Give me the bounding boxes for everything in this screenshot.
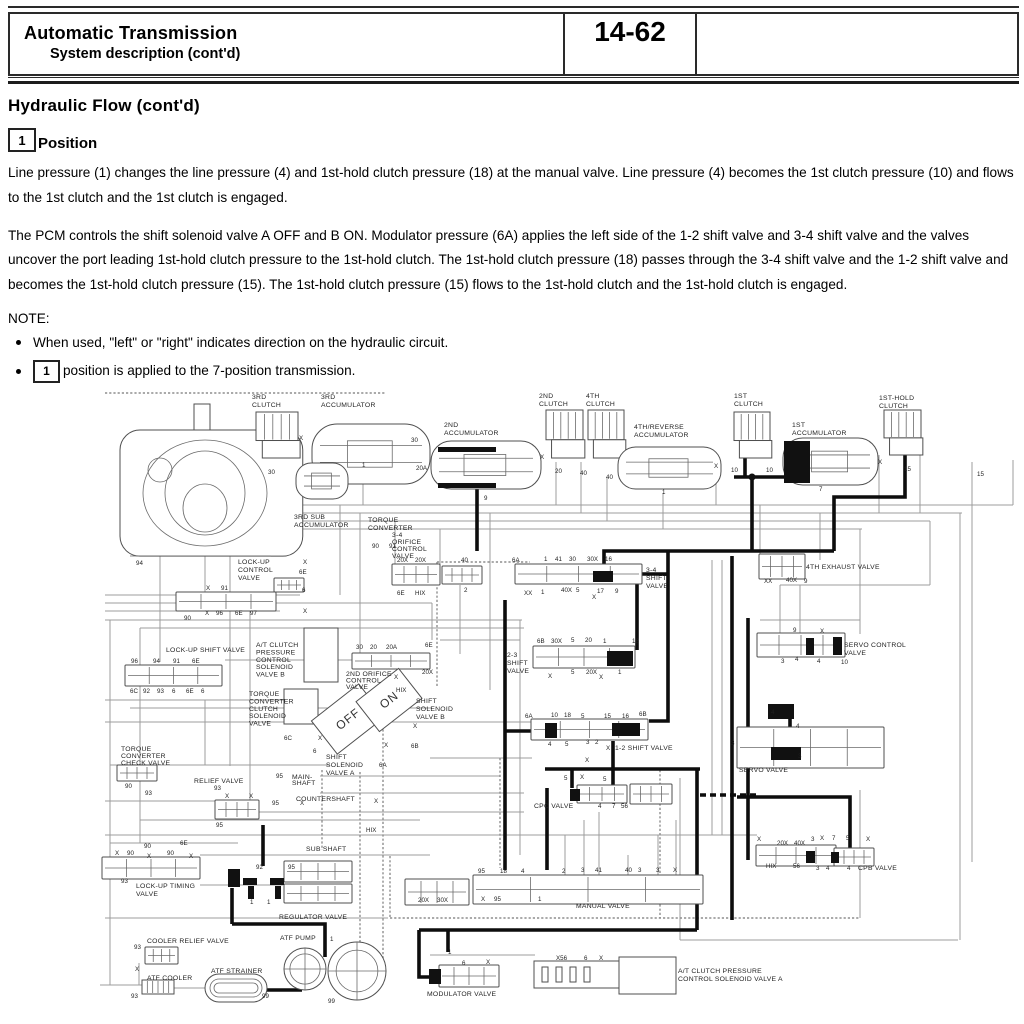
- diagram-label: TORQUECONVERTERCHECK VALVE: [121, 746, 171, 767]
- section-heading: Hydraulic Flow (cont'd): [8, 96, 1016, 116]
- port-label: 6E: [180, 840, 188, 847]
- diagram-label: 1STCLUTCH: [734, 393, 763, 408]
- circle-shape: [328, 942, 386, 1000]
- port-label: X: [249, 793, 253, 800]
- port-label: 20X: [422, 669, 433, 676]
- diagram-label: ATF PUMP: [280, 935, 316, 942]
- port-label: 9: [615, 588, 619, 595]
- port-label: 4: [771, 709, 775, 716]
- port-label: 93: [214, 785, 221, 792]
- port-label: 4: [847, 865, 851, 872]
- diagram-label: LOCK-UP TIMINGVALVE: [136, 883, 195, 898]
- port-label: X: [147, 853, 151, 860]
- port-label: X: [206, 585, 210, 592]
- port-label: 10: [731, 467, 738, 474]
- port-label: 5: [576, 587, 580, 594]
- port-label: X: [757, 836, 761, 843]
- port-label: X: [205, 610, 209, 617]
- port-label: 93: [131, 993, 138, 1000]
- dark-shape: [270, 878, 284, 885]
- port-label: 90: [144, 843, 151, 850]
- port-label: 1: [541, 589, 545, 596]
- port-label: X: [580, 774, 584, 781]
- port-label: 56: [621, 803, 628, 810]
- port-label: 1: [267, 899, 271, 906]
- dark-shape: [593, 571, 613, 582]
- header-bottom-rule: [8, 77, 1019, 84]
- port-label: X: [820, 835, 824, 842]
- port-label: 6B: [537, 638, 545, 645]
- port-label: 20: [555, 468, 562, 475]
- port-label: 30: [411, 437, 418, 444]
- port-label: 40X: [786, 577, 797, 584]
- hydraulic-circuit-diagram: OFFON3RDCLUTCH3RDACCUMULATOR3RD SUBACCUM…: [0, 385, 1024, 1024]
- port-label: XX: [524, 590, 532, 597]
- diagram-label: 3RDACCUMULATOR: [321, 394, 376, 409]
- diagram-label: MODULATOR VALVE: [427, 991, 497, 998]
- port-label: 16: [622, 713, 629, 720]
- port-label: HIX: [766, 863, 776, 870]
- port-label: 5: [564, 775, 568, 782]
- note-list: When used, "left" or "right" indicates d…: [12, 333, 1016, 383]
- valve-shape: [125, 665, 222, 686]
- port-label: X: [599, 674, 603, 681]
- port-label: 6E: [299, 569, 307, 576]
- port-label: 92: [256, 864, 263, 871]
- diagram-label: 3-4SHIFTVALVE: [646, 567, 668, 590]
- port-label: 56: [793, 863, 800, 870]
- port-label: 1: [538, 896, 542, 903]
- port-label: 95: [276, 773, 283, 780]
- bullet-dot-icon: [16, 369, 21, 374]
- diagram-label: COUNTERSHAFT: [296, 796, 355, 803]
- port-label: 6: [302, 587, 306, 594]
- port-label: 20X: [397, 557, 408, 564]
- port-label: 5: [846, 835, 850, 842]
- port-label: 40: [625, 867, 632, 874]
- note-label: NOTE:: [8, 311, 1016, 326]
- valve-shape: [577, 785, 627, 803]
- box-shape: [304, 628, 338, 682]
- dark-shape: [784, 441, 810, 483]
- position-row: 1 Position: [8, 130, 1016, 152]
- clutch-shape: [884, 410, 923, 455]
- port-label: 15: [977, 471, 984, 478]
- port-label: 94: [136, 560, 143, 567]
- port-label: 18: [564, 712, 571, 719]
- port-label: 10: [551, 712, 558, 719]
- port-label: HIX: [396, 687, 406, 694]
- port-label: X: [820, 628, 824, 635]
- port-label: 20A: [386, 644, 398, 651]
- port-label: 6B: [411, 743, 419, 750]
- port-label: X: [481, 896, 485, 903]
- diagram-label: REGULATOR VALVE: [279, 914, 347, 921]
- port-label: X: [299, 435, 303, 442]
- port-label: X: [413, 723, 417, 730]
- page-number: 14-62: [565, 14, 697, 74]
- port-label: 95: [494, 896, 501, 903]
- port-label: 20: [370, 644, 377, 651]
- port-label: X: [548, 673, 552, 680]
- cooler-shape: [142, 980, 174, 994]
- paragraph-1: Line pressure (1) changes the line press…: [8, 161, 1016, 210]
- dark-shape: [806, 851, 815, 863]
- port-label: 95: [216, 822, 223, 829]
- port-label: 6: [201, 688, 205, 695]
- valve-shape: [176, 592, 276, 611]
- diagram-label: LOCK-UPCONTROLVALVE: [238, 559, 273, 582]
- port-label: HIX: [415, 590, 425, 597]
- port-label: 4: [598, 803, 602, 810]
- note-item-2: 1 position is applied to the 7-position …: [12, 360, 1016, 383]
- port-label: 6E: [397, 590, 405, 597]
- port-label: 30: [268, 469, 275, 476]
- port-label: 20X: [415, 557, 426, 564]
- position-number-box: 1: [8, 128, 36, 152]
- page-content: Hydraulic Flow (cont'd) 1 Position Line …: [8, 96, 1016, 383]
- port-label: HIX: [366, 827, 376, 834]
- port-label: X: [225, 793, 229, 800]
- port-label: 20X: [418, 897, 429, 904]
- note-position-box: 1: [33, 360, 60, 383]
- diagram-label: SHIFTSOLENOIDVALVE B: [416, 698, 453, 721]
- port-label: X: [300, 800, 304, 807]
- port-label: 1: [448, 949, 452, 956]
- port-label: X: [606, 745, 610, 752]
- port-label: 90: [167, 850, 174, 857]
- port-label: X: [189, 853, 193, 860]
- diagram-label: RELIEF VALVE: [194, 778, 244, 785]
- port-label: 93: [134, 944, 141, 951]
- port-label: 3: [731, 740, 735, 747]
- dark-shape: [771, 747, 801, 760]
- port-label: 5: [571, 637, 575, 644]
- dark-shape: [248, 886, 254, 899]
- box-shape: [619, 957, 676, 994]
- diagram-label: 2NDACCUMULATOR: [444, 422, 499, 437]
- valve-shape: [274, 578, 304, 592]
- port-label: 41: [555, 556, 562, 563]
- port-label: X: [115, 850, 119, 857]
- port-label: 9: [804, 578, 808, 585]
- port-label: 6: [584, 955, 588, 962]
- port-label: 10: [766, 467, 773, 474]
- port-label: 2: [464, 587, 468, 594]
- port-label: 5: [603, 776, 607, 783]
- valve-shape: [757, 633, 845, 657]
- port-label: 4: [795, 656, 799, 663]
- port-label: 6C: [130, 688, 138, 695]
- port-label: 96: [216, 610, 223, 617]
- port-label: X: [673, 867, 677, 874]
- port-label: X: [878, 459, 882, 466]
- diagram-label: 2NDCLUTCH: [539, 393, 568, 408]
- clutch-shape: [256, 412, 300, 458]
- port-label: 3: [586, 739, 590, 746]
- diagram-label: 4TH EXHAUST VALVE: [806, 564, 880, 571]
- port-label: 3: [811, 836, 815, 843]
- port-label: 95: [288, 864, 295, 871]
- valve-shape: [392, 564, 440, 585]
- port-label: 4: [817, 658, 821, 665]
- clutch-shape: [588, 410, 626, 458]
- port-label: 1: [662, 489, 666, 496]
- port-label: 4: [796, 723, 800, 730]
- port-label: X: [384, 742, 388, 749]
- port-label: X: [394, 674, 398, 681]
- note-item-1-text: When used, "left" or "right" indicates d…: [33, 333, 448, 353]
- diagram-label: 2-3SHIFTVALVE: [507, 652, 529, 675]
- port-label: 1: [544, 556, 548, 563]
- diagram-label: SERVO CONTROLVALVE: [844, 642, 906, 657]
- port-label: 20X: [777, 840, 788, 847]
- port-label: 90: [184, 615, 191, 622]
- accum-shape: [296, 463, 348, 499]
- port-label: 4: [548, 741, 552, 748]
- port-label: 6: [313, 748, 317, 755]
- port-label: 5: [581, 713, 585, 720]
- port-label: 96: [131, 658, 138, 665]
- diagram-label: 3-4ORIFICECONTROLVALVE: [392, 532, 427, 560]
- port-label: X56: [556, 955, 568, 962]
- port-label: X: [866, 836, 870, 843]
- port-label: 9: [484, 495, 488, 502]
- valve-shape: [117, 765, 157, 781]
- port-label: 99: [328, 998, 335, 1005]
- dark-shape: [607, 651, 633, 666]
- port-label: 30: [356, 644, 363, 651]
- hydraulic-diagram-svg: OFFON3RDCLUTCH3RDACCUMULATOR3RD SUBACCUM…: [0, 385, 1024, 1024]
- dark-shape: [806, 638, 814, 655]
- port-label: 18: [500, 868, 507, 875]
- diagram-label: COOLER RELIEF VALVE: [147, 938, 229, 945]
- dark-shape: [228, 869, 240, 887]
- position-label: Position: [38, 135, 97, 152]
- port-label: 93: [145, 790, 152, 797]
- port-label: X: [303, 608, 307, 615]
- port-label: 40X: [794, 840, 805, 847]
- port-label: 4: [826, 865, 830, 872]
- port-label: 1: [618, 669, 622, 676]
- note-item-2-text: position is applied to the 7-position tr…: [63, 361, 355, 381]
- port-label: 40X: [561, 587, 572, 594]
- valve-shape: [102, 857, 200, 879]
- valve-shape: [439, 965, 499, 987]
- port-label: 1: [330, 936, 334, 943]
- port-label: XX: [764, 578, 772, 585]
- port-label: 7: [612, 803, 616, 810]
- valve-shape: [215, 800, 259, 819]
- dark-shape: [275, 886, 281, 899]
- box-shape: [284, 689, 318, 724]
- accum-shape: [618, 447, 721, 489]
- port-label: 17: [597, 588, 604, 595]
- diagram-label: 4THCLUTCH: [586, 393, 615, 408]
- port-label: 3: [816, 865, 820, 872]
- port-label: 6: [172, 688, 176, 695]
- port-label: 1: [603, 638, 607, 645]
- port-label: 20: [585, 637, 592, 644]
- port-label: 7: [832, 835, 836, 842]
- port-label: 5: [565, 741, 569, 748]
- port-label: 6: [462, 960, 466, 967]
- port-label: 10: [841, 659, 848, 666]
- port-label: 6B: [639, 711, 647, 718]
- diagram-label: MAIN-SHAFT: [292, 774, 316, 787]
- note-item-1: When used, "left" or "right" indicates d…: [12, 333, 1016, 353]
- port-label: 90: [372, 543, 379, 550]
- port-label: 30X: [587, 556, 598, 563]
- port-label: X: [592, 594, 596, 601]
- dark-shape: [438, 447, 496, 452]
- port-label: 90: [125, 783, 132, 790]
- port-label: 1: [250, 899, 254, 906]
- circle-shape: [284, 948, 326, 990]
- port-label: 6A: [379, 762, 387, 769]
- port-label: 40: [580, 470, 587, 477]
- diagram-label: LOCK-UP SHIFT VALVE: [166, 647, 245, 654]
- port-label: 3: [581, 867, 585, 874]
- port-label: X: [714, 463, 718, 470]
- dark-shape: [429, 969, 441, 984]
- port-label: 18: [632, 638, 639, 645]
- valve-shape: [737, 727, 884, 768]
- port-label: 93: [157, 688, 164, 695]
- port-label: 41: [595, 867, 602, 874]
- port-label: 95: [478, 868, 485, 875]
- dark-shape: [243, 878, 257, 885]
- diagram-label: A/T CLUTCH PRESSURECONTROL SOLENOID VALV…: [678, 968, 783, 983]
- paragraph-2: The PCM controls the shift solenoid valv…: [8, 224, 1016, 298]
- port-label: 3: [781, 658, 785, 665]
- port-label: 40: [461, 557, 468, 564]
- port-label: 94: [153, 658, 160, 665]
- port-label: 3: [798, 753, 802, 760]
- diagram-label: CPC VALVE: [534, 803, 574, 810]
- port-label: X: [318, 735, 322, 742]
- valve-shape: [352, 653, 430, 669]
- port-label: 9: [793, 627, 797, 634]
- valve-shape: [759, 554, 805, 579]
- valve-shape: [473, 875, 703, 904]
- diagram-label: ATF COOLER: [147, 975, 192, 982]
- diagram-label: MANUAL VALVE: [576, 903, 630, 910]
- components-layer: OFFON: [102, 404, 923, 1002]
- port-label: 20A: [416, 465, 428, 472]
- port-label: 99: [262, 993, 269, 1000]
- diagram-label: 4TH/REVERSEACCUMULATOR: [634, 424, 689, 439]
- port-label: 91: [389, 543, 396, 550]
- header-title-cell: Automatic Transmission System descriptio…: [10, 14, 565, 74]
- port-label: 4: [521, 868, 525, 875]
- diagram-label: 1ST-HOLDCLUTCH: [879, 395, 914, 410]
- valve-shape: [515, 564, 642, 584]
- diagram-label: 1-2 SHIFT VALVE: [615, 745, 673, 752]
- port-label: 93: [121, 878, 128, 885]
- port-label: X: [135, 966, 139, 973]
- port-label: 2: [595, 739, 599, 746]
- port-label: 15: [604, 713, 611, 720]
- port-label: 3: [638, 867, 642, 874]
- port-label: 6E: [235, 610, 243, 617]
- dark-shape: [438, 483, 496, 488]
- diagram-label: ATF STRAINER: [211, 968, 263, 975]
- dot-shape: [749, 474, 756, 481]
- valve-shape: [284, 884, 352, 903]
- diagram-label: SUB SHAFT: [306, 846, 346, 853]
- port-label: 2: [562, 868, 566, 875]
- diagram-label: 3RDCLUTCH: [252, 394, 281, 409]
- port-label: 6C: [284, 735, 292, 742]
- page-header: Automatic Transmission System descriptio…: [8, 6, 1019, 84]
- diagram-label: SHIFTSOLENOIDVALVE A: [326, 754, 363, 777]
- port-label: 90: [127, 850, 134, 857]
- valve-shape: [630, 784, 672, 804]
- clutch-shape: [546, 410, 585, 458]
- port-label: 15: [904, 466, 911, 473]
- manual-page: Automatic Transmission System descriptio…: [0, 0, 1024, 1024]
- port-label: 6E: [425, 642, 433, 649]
- port-label: 7: [819, 486, 823, 493]
- valve-shape: [145, 947, 178, 964]
- port-label: 1: [362, 462, 366, 469]
- port-label: 6E: [192, 658, 200, 665]
- page-title: Automatic Transmission: [24, 23, 563, 44]
- port-label: 5: [571, 669, 575, 676]
- dark-shape: [612, 723, 640, 736]
- port-label: X: [585, 757, 589, 764]
- port-label: 40: [606, 474, 613, 481]
- port-label: 30: [569, 556, 576, 563]
- port-label: 6E: [186, 688, 194, 695]
- port-label: 30X: [437, 897, 448, 904]
- header-empty-cell: [697, 14, 1017, 74]
- clutch-shape: [734, 412, 772, 458]
- page-subtitle: System description (cont'd): [50, 46, 563, 62]
- dark-shape: [545, 723, 557, 738]
- port-label: 91: [173, 658, 180, 665]
- port-label: 20X: [586, 669, 597, 676]
- diagram-label: TORQUECONVERTER: [368, 517, 413, 532]
- port-label: 30X: [551, 638, 562, 645]
- diagram-label: 1STACCUMULATOR: [792, 422, 847, 437]
- port-label: 6A: [512, 557, 520, 564]
- port-label: X: [599, 955, 603, 962]
- port-label: 16: [605, 556, 612, 563]
- dark-shape: [833, 637, 842, 655]
- port-label: X: [374, 798, 378, 805]
- port-label: 97: [250, 610, 257, 617]
- bars-shape: [534, 961, 620, 988]
- dark-shape: [570, 789, 580, 801]
- port-label: X: [486, 959, 490, 966]
- strainer-shape: [205, 974, 267, 1002]
- port-label: X: [540, 454, 544, 461]
- diagram-label: CPB VALVE: [858, 865, 897, 872]
- diagram-label: SERVO VALVE: [739, 767, 788, 774]
- port-label: 91: [221, 585, 228, 592]
- port-label: 95: [272, 800, 279, 807]
- port-label: X: [303, 559, 307, 566]
- bullet-dot-icon: [16, 340, 21, 345]
- valve-shape: [834, 848, 874, 866]
- port-label: 92: [143, 688, 150, 695]
- port-label: 3: [656, 867, 660, 874]
- port-label: 6A: [525, 713, 533, 720]
- valve-shape: [442, 566, 482, 584]
- dark-shape: [831, 852, 839, 863]
